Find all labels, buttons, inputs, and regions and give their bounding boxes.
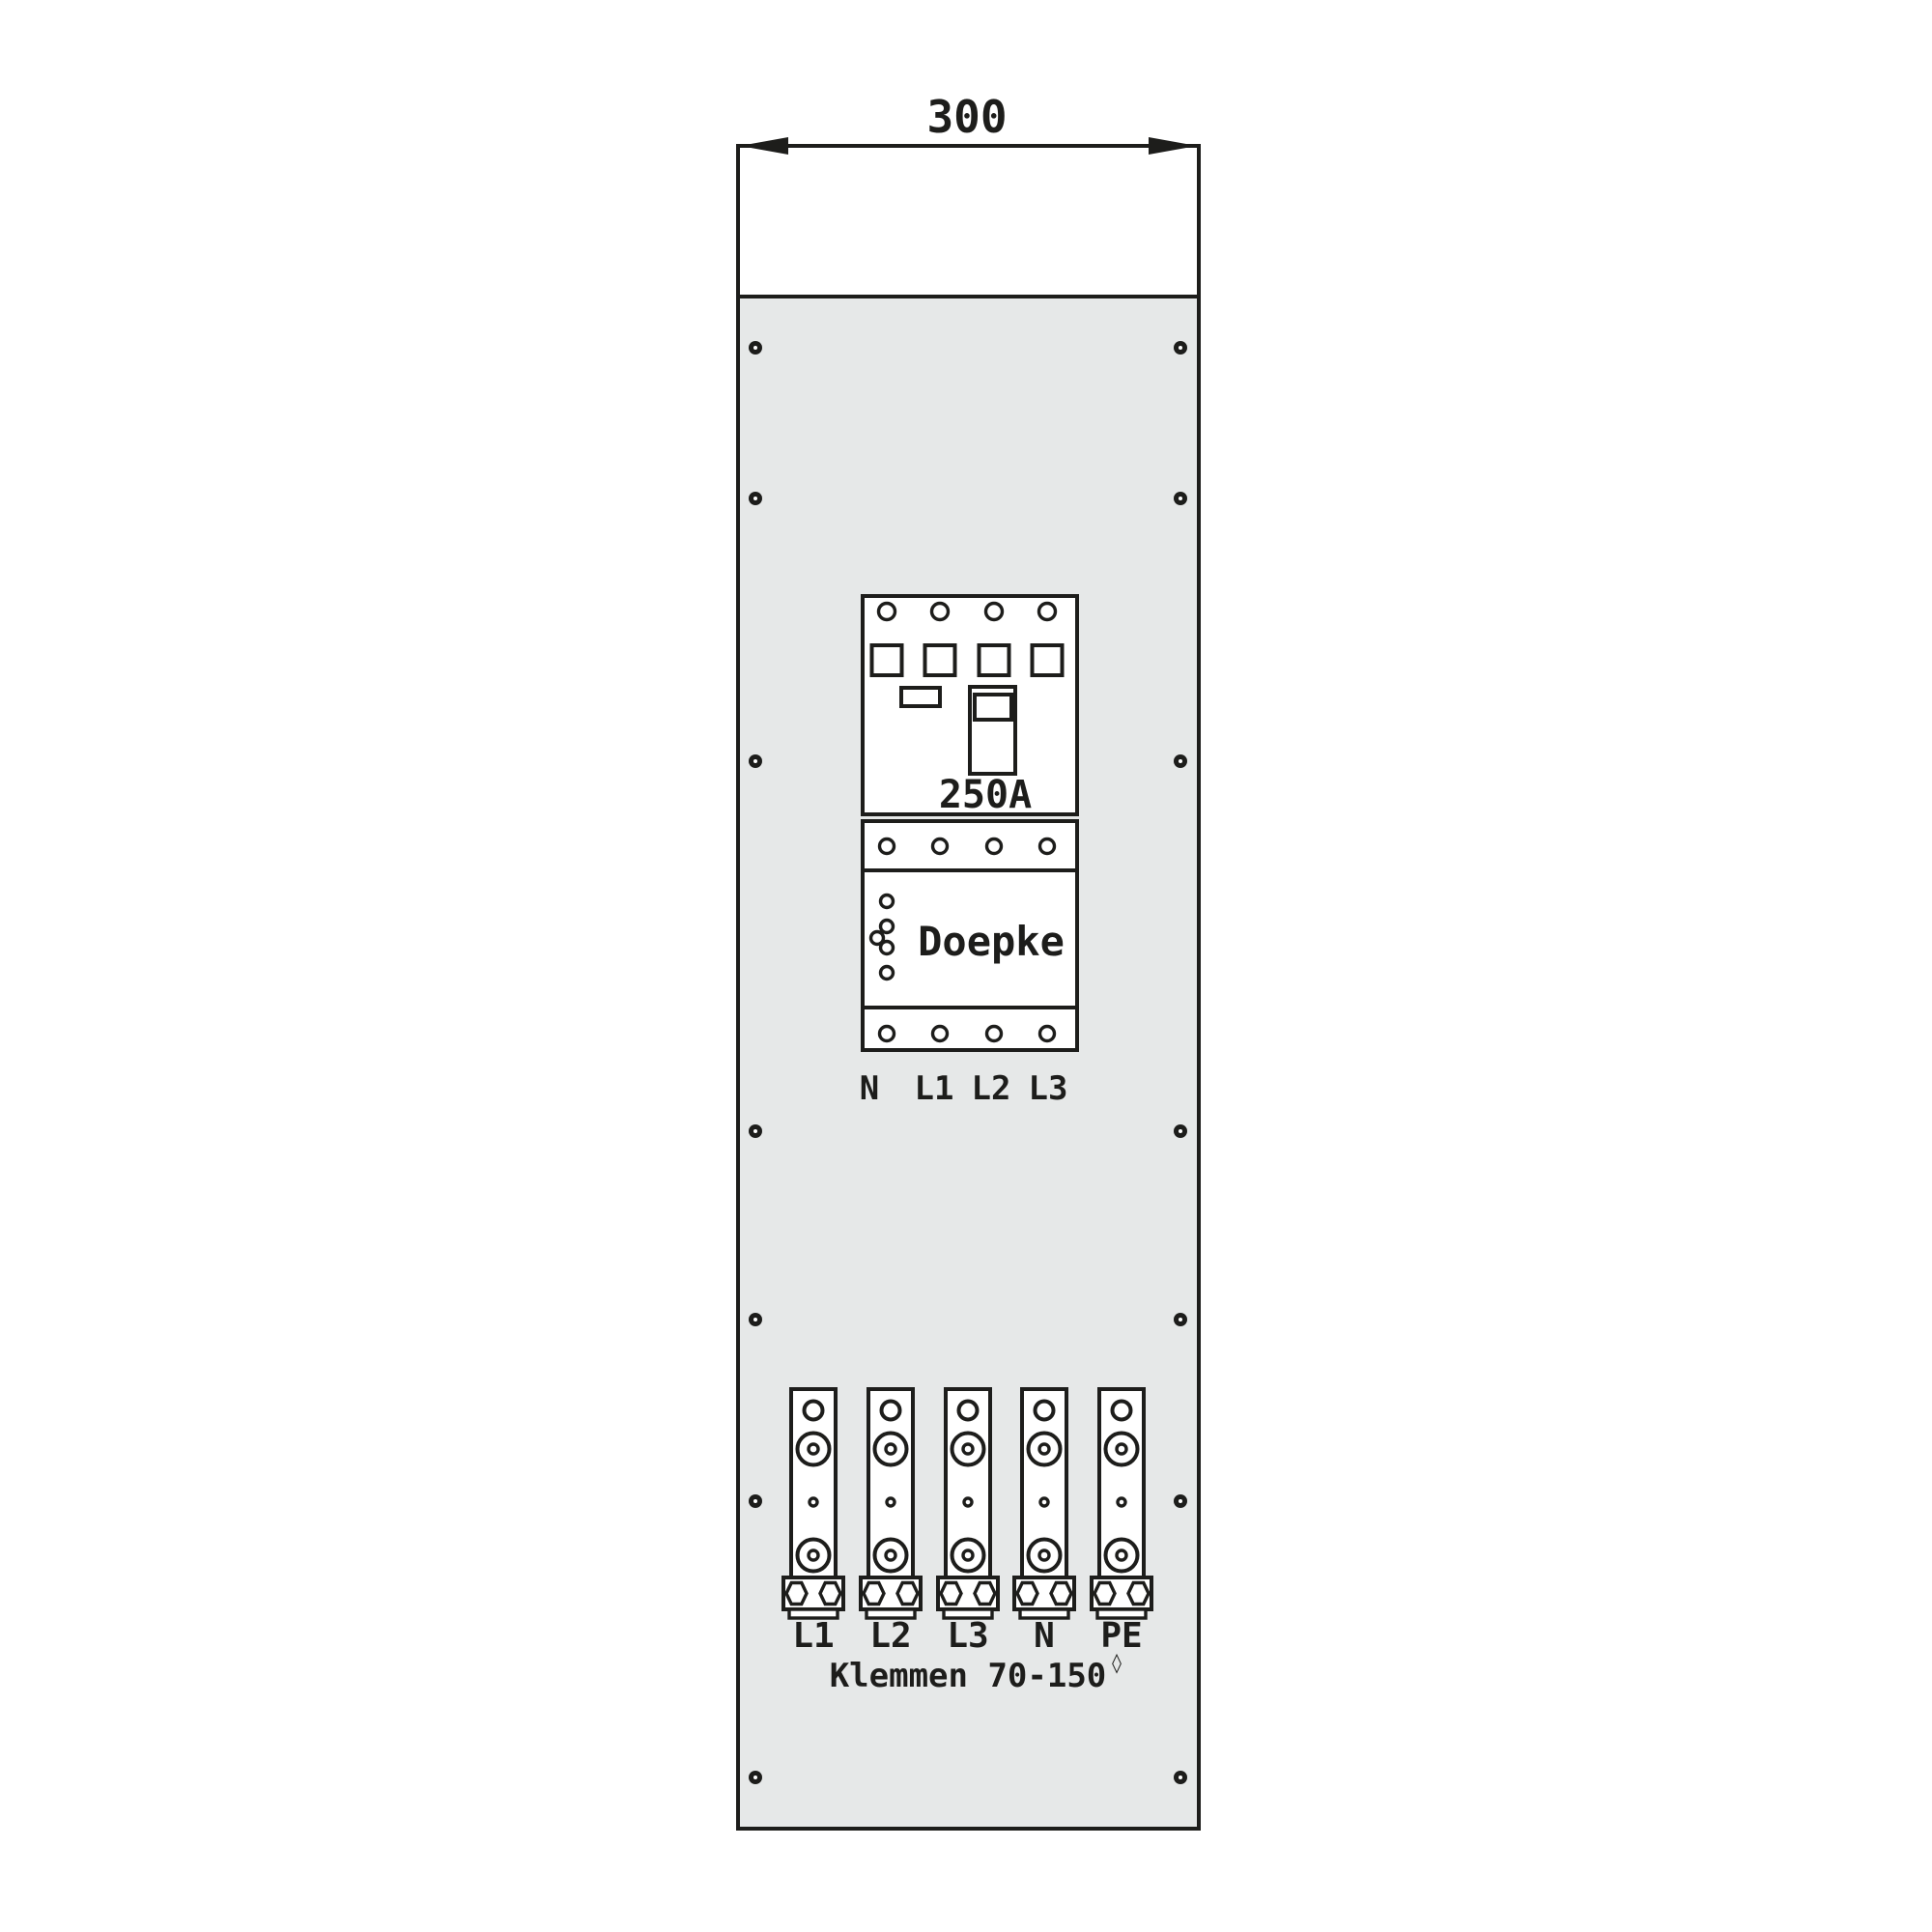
screw-hole (1174, 341, 1187, 355)
terminal-caption-mark: ◊ (1111, 1651, 1122, 1674)
breaker-terminal-screw (933, 1027, 948, 1041)
screw-hole (749, 754, 762, 768)
brand-dot (881, 895, 894, 908)
screw-hole (749, 341, 762, 355)
screw-hole (1174, 1494, 1187, 1508)
terminal-block (1092, 1389, 1151, 1618)
breaker-terminal-screw (1040, 1027, 1055, 1041)
panel-front-plate-drawing: 300 250A (0, 0, 1932, 1932)
terminal-label-pe: PE (1100, 1616, 1142, 1656)
screw-hole (1174, 1313, 1187, 1326)
terminal-block (783, 1389, 843, 1618)
screw-hole (749, 1313, 762, 1326)
terminal-caption: Klemmen 70-150 ◊ (830, 1651, 1122, 1695)
breaker-terminal-screw (1040, 839, 1055, 854)
screw-hole (749, 1494, 762, 1508)
breaker-terminal-label-l3: L3 (1029, 1069, 1068, 1108)
terminal-block (861, 1389, 921, 1618)
screw-hole (749, 1771, 762, 1784)
breaker-terminal-screw (880, 1027, 895, 1041)
brand-dot (881, 942, 894, 954)
breaker-device: 250A Doepke N L1 L2 L3 (860, 596, 1077, 1108)
breaker-indicator-window (872, 645, 902, 675)
terminal-label-l1: L1 (792, 1616, 834, 1656)
brand-dot (881, 967, 894, 980)
drawing-canvas: 300 250A (0, 0, 1932, 1932)
screw-hole (1174, 754, 1187, 768)
dimension-width-label: 300 (926, 91, 1007, 143)
breaker-toggle-switch (970, 687, 1015, 774)
breaker-brand-label: Doepke (918, 918, 1065, 965)
breaker-terminal-screw (933, 839, 948, 854)
breaker-terminal-label-l2: L2 (972, 1069, 1011, 1108)
breaker-terminal-screw (987, 1027, 1002, 1041)
terminal-block (938, 1389, 998, 1618)
breaker-vent-hole (932, 604, 949, 620)
screw-hole (1174, 492, 1187, 505)
screw-hole (749, 492, 762, 505)
terminal-label-n: N (1034, 1616, 1055, 1656)
breaker-indicator-window (925, 645, 955, 675)
screw-hole (1174, 1124, 1187, 1138)
breaker-vent-hole (1039, 604, 1056, 620)
breaker-terminal-label-n: N (860, 1069, 879, 1108)
screw-hole (749, 1124, 762, 1138)
toggle-handle (975, 695, 1011, 720)
breaker-indicator-window (980, 645, 1009, 675)
breaker-terminal-label-l1: L1 (915, 1069, 954, 1108)
terminal-caption-text: Klemmen 70-150 (830, 1657, 1107, 1695)
breaker-test-button (901, 688, 940, 706)
breaker-vent-hole (986, 604, 1003, 620)
breaker-vent-hole (879, 604, 895, 620)
terminal-block (1014, 1389, 1074, 1618)
terminal-label-l3: L3 (947, 1616, 988, 1656)
terminal-label-l2: L2 (869, 1616, 911, 1656)
breaker-indicator-window (1033, 645, 1063, 675)
breaker-terminal-screw (880, 839, 895, 854)
breaker-rating-label: 250A (939, 773, 1032, 817)
brand-dot (881, 921, 894, 933)
screw-hole (1174, 1771, 1187, 1784)
width-dimension: 300 (738, 91, 1199, 155)
breaker-terminal-screw (987, 839, 1002, 854)
